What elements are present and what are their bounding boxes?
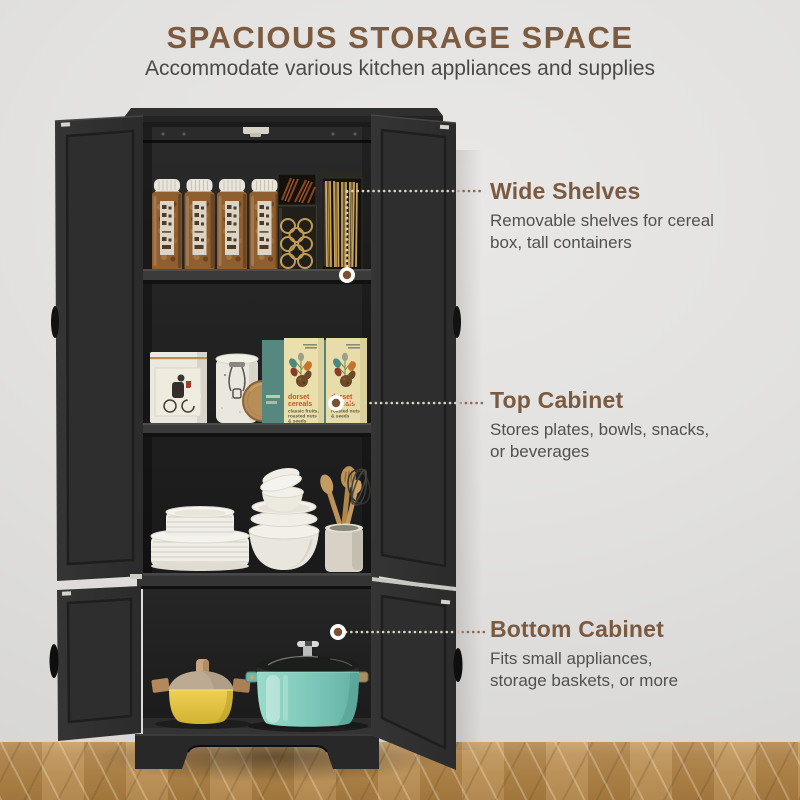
callout-heading: Bottom Cabinet <box>490 616 730 643</box>
cereal-box-teal-left <box>262 340 286 423</box>
callout-body-line: Removable shelves for cereal <box>490 210 730 232</box>
pasta-nest-container <box>278 206 317 270</box>
left-bottom-door <box>50 586 142 741</box>
cereal-desc-text: & seeds <box>331 414 350 420</box>
callout-body-line: Fits small appliances, <box>490 648 730 670</box>
nut-jar <box>250 179 280 271</box>
callout-body-line: box, tall containers <box>490 232 730 254</box>
spaghetti-container <box>322 172 362 270</box>
callout-top-cabinet: Top Cabinet Stores plates, bowls, snacks… <box>490 387 730 464</box>
shelf-1 <box>143 269 371 284</box>
callout-marker-top-cabinet <box>328 395 344 411</box>
page-subtitle: Accommodate various kitchen appliances a… <box>0 57 800 81</box>
shelf-2 <box>143 423 371 437</box>
right-top-door <box>371 115 461 589</box>
cereal-brand-text: cereals <box>288 401 312 408</box>
nut-jar <box>152 179 182 271</box>
callout-marker-bottom-cabinet <box>330 624 346 640</box>
door-handle <box>50 644 59 678</box>
middle-divider <box>137 573 379 589</box>
nut-jar <box>185 179 215 271</box>
callout-heading: Wide Shelves <box>490 178 730 205</box>
door-handle <box>51 306 59 338</box>
callout-bottom-cabinet: Bottom Cabinet Fits small appliances, st… <box>490 616 730 693</box>
callout-wide-shelves: Wide Shelves Removable shelves for cerea… <box>490 178 730 255</box>
callout-body-line: or beverages <box>490 441 730 463</box>
callout-body-line: Stores plates, bowls, snacks, <box>490 419 730 441</box>
square-canister <box>150 352 207 423</box>
cereal-brand-text: dorset <box>288 394 310 401</box>
cereal-box-1: dorset cereals classic fruits, roasted n… <box>284 338 324 425</box>
page-title: SPACIOUS STORAGE SPACE <box>0 20 800 56</box>
door-handle <box>454 648 463 682</box>
door-handle <box>453 306 461 338</box>
right-bottom-door <box>371 581 463 770</box>
stick-pasta-container <box>278 174 316 205</box>
callout-heading: Top Cabinet <box>490 387 730 414</box>
plinth-base <box>135 734 379 769</box>
cereal-box-2: dorset cereals roasted nuts & seeds <box>326 338 367 423</box>
nut-jar <box>217 179 247 271</box>
callout-marker-wide-shelves <box>339 267 355 283</box>
left-top-door <box>51 116 143 581</box>
product-hero: dorset cereals classic fruits, roasted n… <box>0 0 800 800</box>
callout-body-line: storage baskets, or more <box>490 670 730 692</box>
